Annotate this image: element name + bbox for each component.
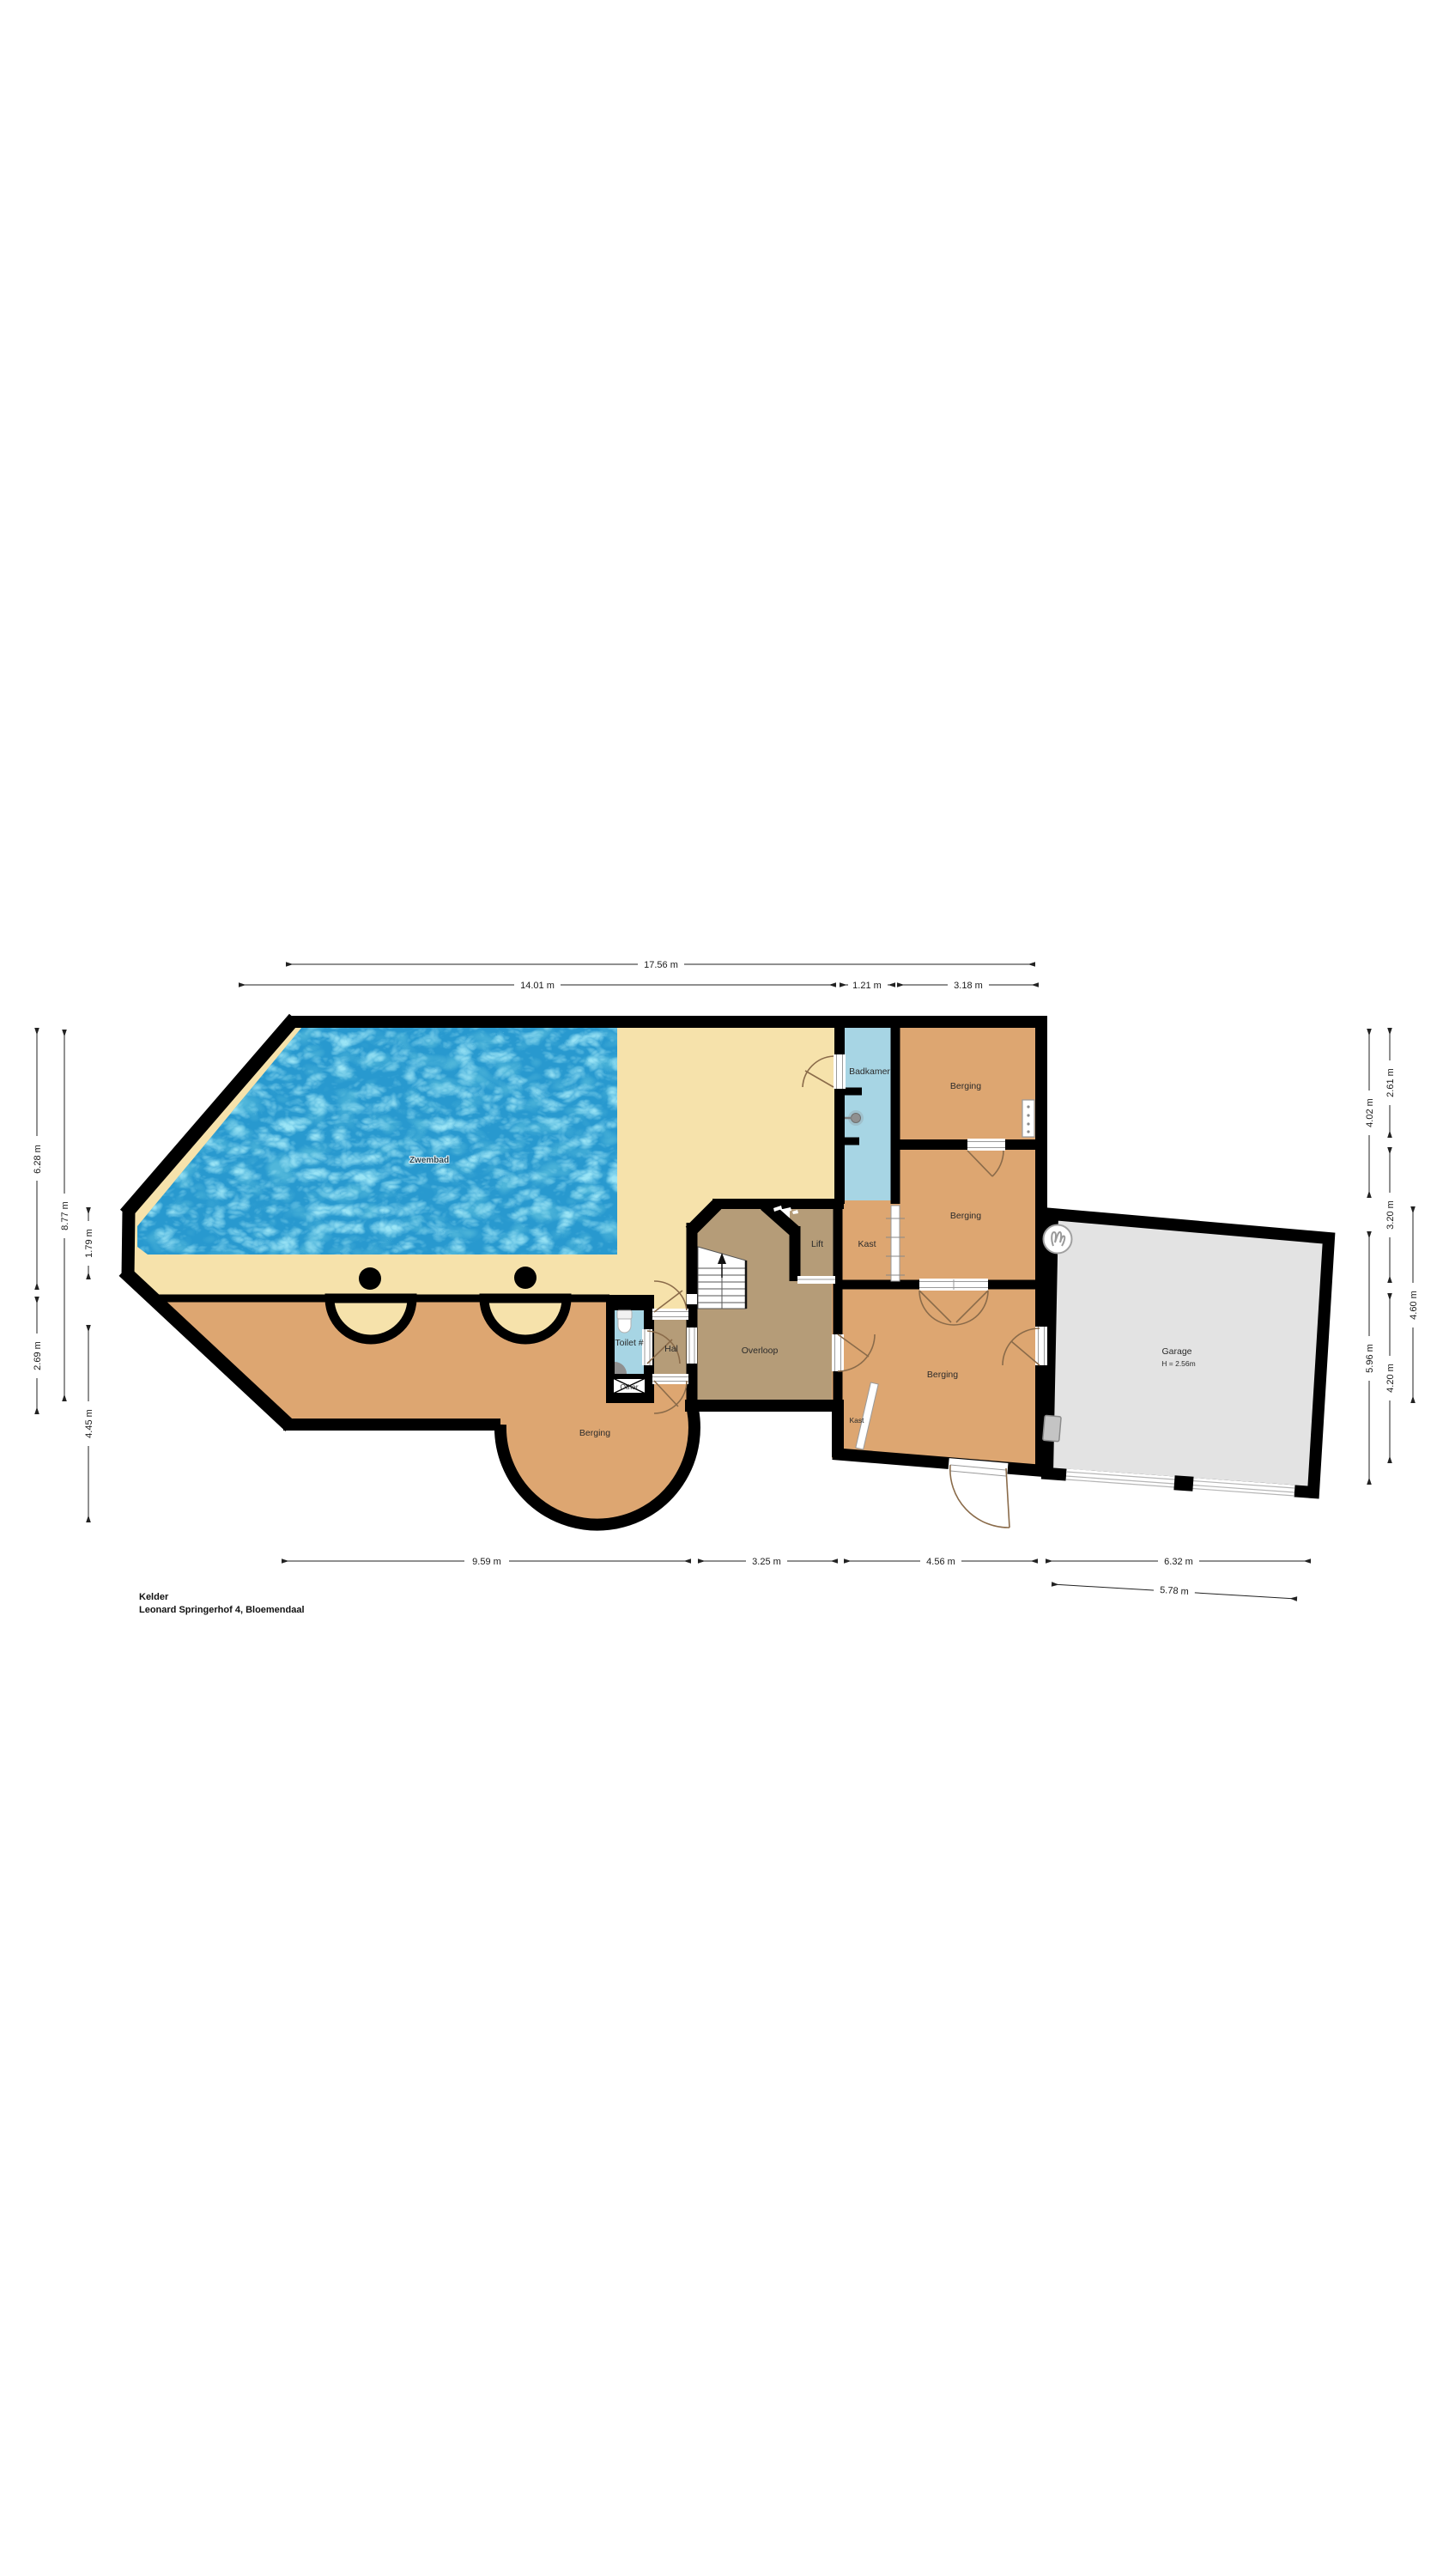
svg-text:6.28 m: 6.28 m: [33, 1145, 43, 1174]
svg-text:4.20 m: 4.20 m: [1385, 1364, 1396, 1393]
svg-text:2.61 m: 2.61 m: [1385, 1068, 1396, 1097]
svg-text:5.96 m: 5.96 m: [1365, 1344, 1375, 1373]
svg-text:1.21 m: 1.21 m: [852, 981, 882, 991]
svg-text:Kelder: Kelder: [139, 1592, 169, 1602]
svg-text:Garage: Garage: [1161, 1346, 1191, 1357]
svg-text:14.01 m: 14.01 m: [520, 981, 555, 991]
svg-text:Other: Other: [620, 1382, 638, 1391]
svg-text:Leonard Springerhof 4, Bloemen: Leonard Springerhof 4, Bloemendaal: [139, 1605, 305, 1615]
svg-text:Berging: Berging: [950, 1211, 981, 1221]
svg-text:Berging: Berging: [927, 1370, 958, 1380]
svg-text:Kast: Kast: [858, 1239, 876, 1249]
svg-text:Hal: Hal: [664, 1344, 678, 1354]
svg-text:4.02 m: 4.02 m: [1365, 1098, 1375, 1127]
svg-text:2.69 m: 2.69 m: [33, 1341, 43, 1370]
svg-text:4.56 m: 4.56 m: [926, 1557, 955, 1567]
svg-text:Badkamer: Badkamer: [849, 1066, 890, 1077]
svg-text:4.45 m: 4.45 m: [84, 1409, 94, 1438]
svg-text:4.60 m: 4.60 m: [1409, 1291, 1419, 1320]
svg-text:Toilet #: Toilet #: [615, 1338, 643, 1348]
svg-text:Overloop: Overloop: [742, 1346, 779, 1356]
svg-text:9.59 m: 9.59 m: [472, 1557, 501, 1567]
svg-text:Berging: Berging: [579, 1428, 610, 1438]
svg-text:Kast: Kast: [849, 1416, 864, 1425]
svg-text:5.78 m: 5.78 m: [1160, 1585, 1189, 1597]
svg-text:3.25 m: 3.25 m: [752, 1557, 781, 1567]
svg-text:Zwembad: Zwembad: [409, 1156, 449, 1165]
svg-text:1.79 m: 1.79 m: [84, 1229, 94, 1258]
svg-text:3.18 m: 3.18 m: [954, 981, 983, 991]
svg-text:17.56 m: 17.56 m: [644, 960, 678, 970]
svg-text:3.20 m: 3.20 m: [1385, 1200, 1396, 1230]
svg-text:H = 2.56m: H = 2.56m: [1161, 1359, 1195, 1368]
svg-text:8.77 m: 8.77 m: [60, 1201, 70, 1230]
svg-text:Berging: Berging: [950, 1081, 981, 1091]
svg-text:Lift: Lift: [811, 1239, 823, 1249]
svg-text:6.32 m: 6.32 m: [1164, 1557, 1193, 1567]
